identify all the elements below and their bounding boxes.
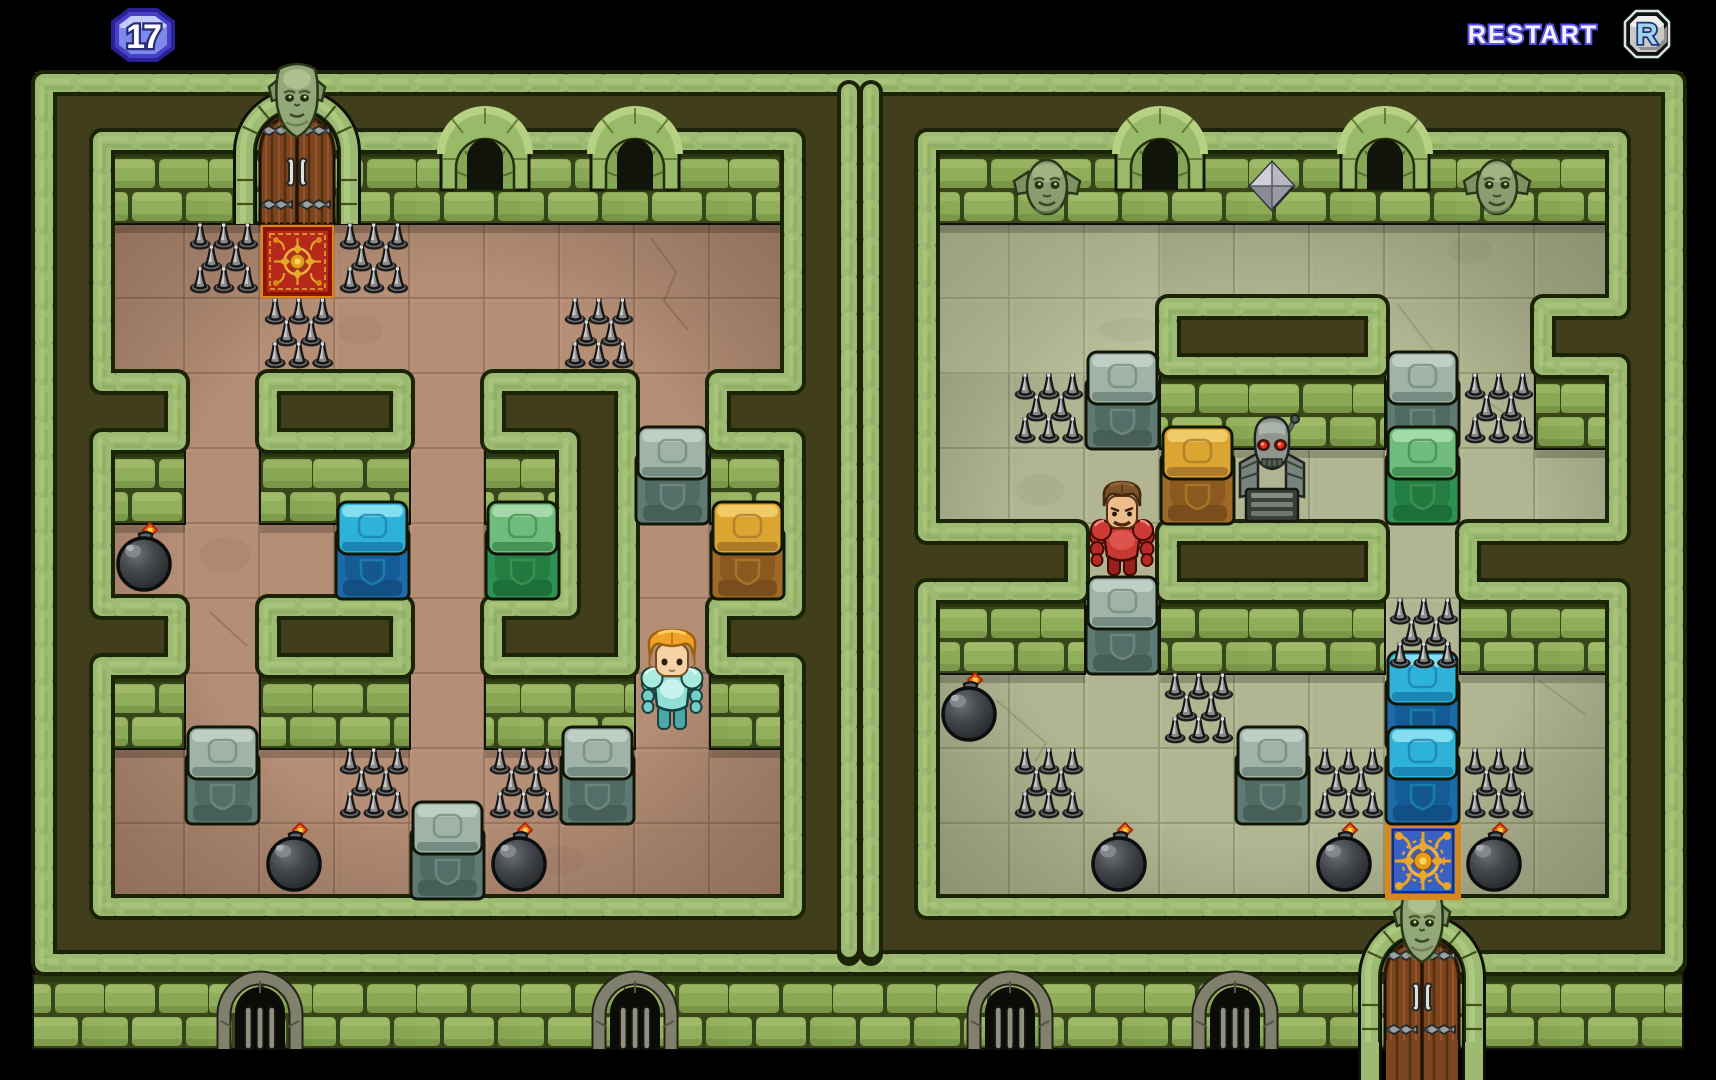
svg-text:17: 17 (126, 18, 161, 56)
svg-text:R: R (1636, 18, 1658, 51)
svg-text:RESTART: RESTART (1468, 21, 1598, 49)
